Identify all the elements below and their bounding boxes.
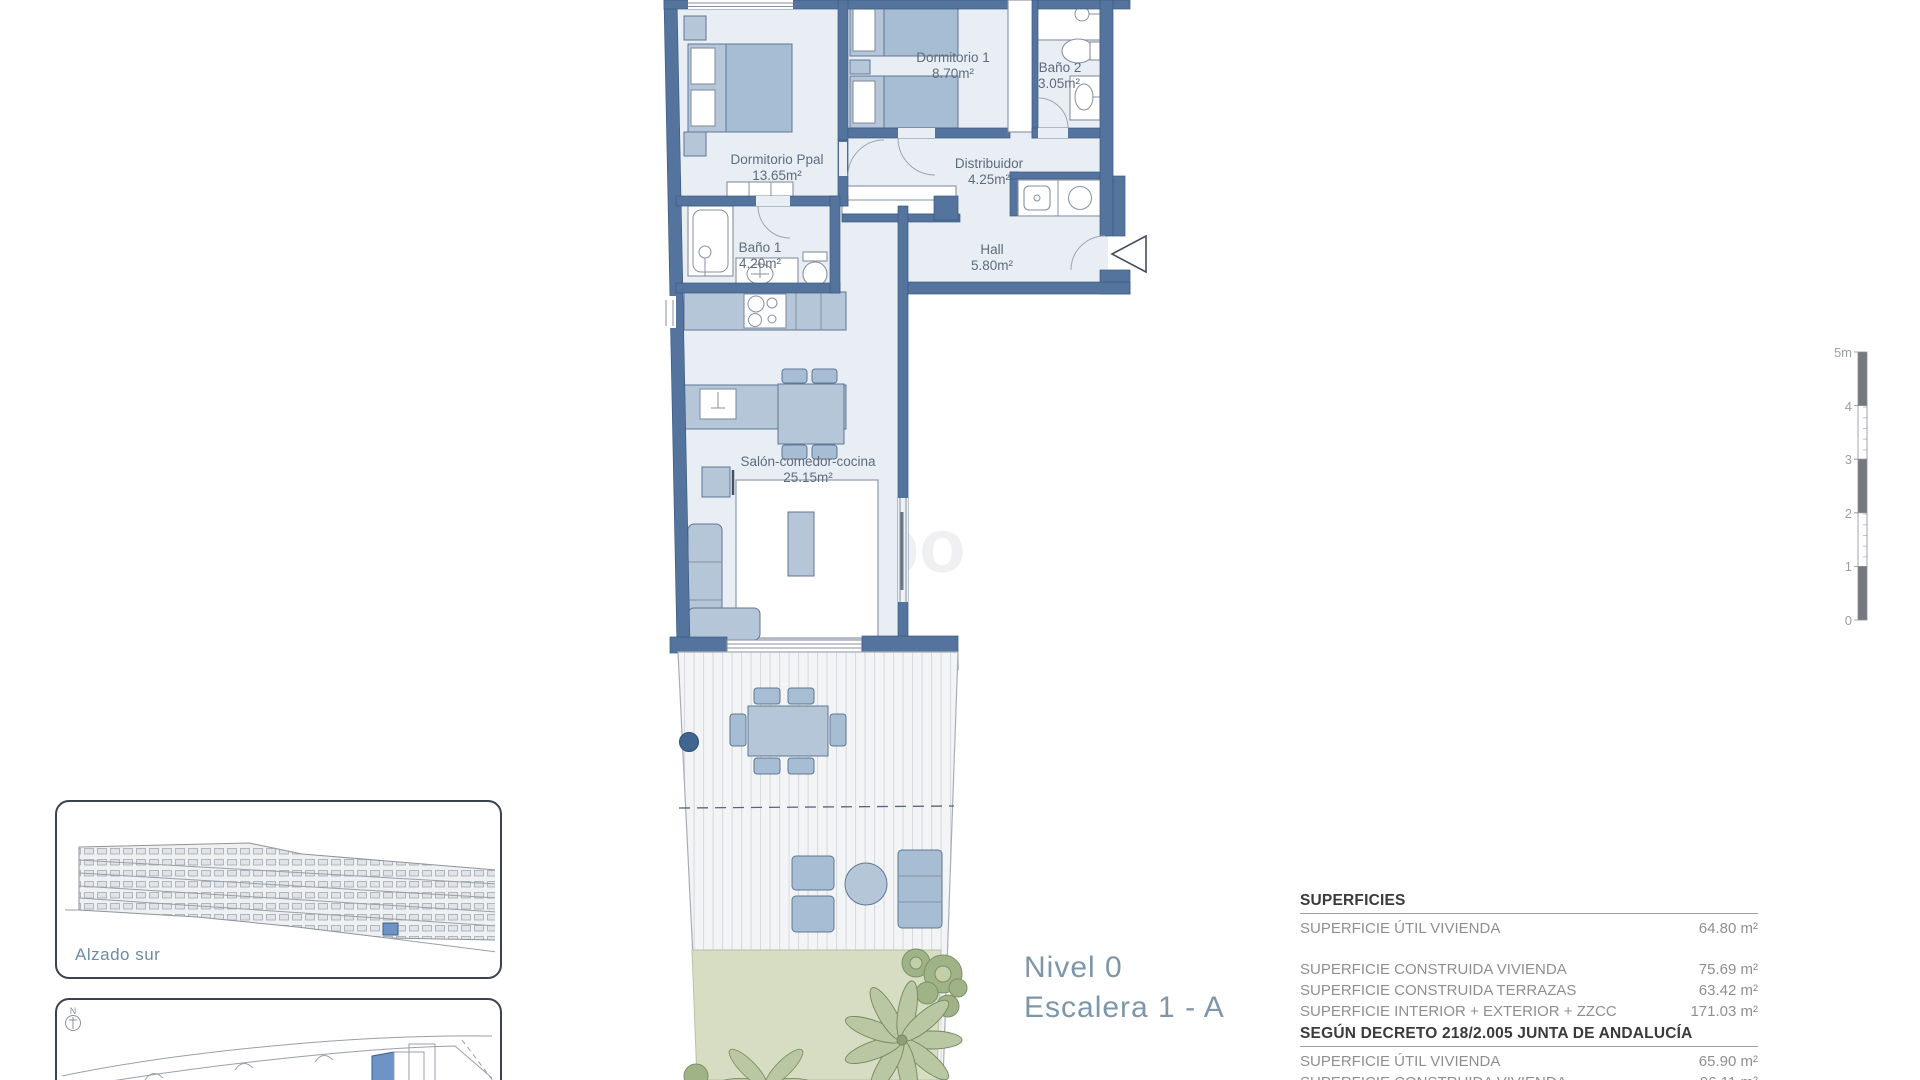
- row-value: 65.90 m²: [1699, 1051, 1758, 1072]
- row-label: SUPERFICIE CONSTRUIDA VIVIENDA: [1300, 959, 1567, 980]
- living-area-furniture: [688, 467, 878, 640]
- room-area: 13.65m²: [752, 168, 802, 183]
- table-row: SUPERFICIE CONSTRUIDA VIVIENDA 75.69 m²: [1300, 959, 1758, 980]
- room-area: 3.05m²: [1038, 76, 1081, 91]
- north-label: N: [70, 1006, 77, 1016]
- table-row: SUPERFICIE CONSTRUIDA VIVIENDA 96.11 m²: [1300, 1072, 1758, 1080]
- divider: [1300, 913, 1758, 914]
- room-label: Baño 1: [739, 240, 782, 255]
- room-area: 8.70m²: [932, 66, 975, 81]
- scale-tick-label: 5m: [1834, 345, 1852, 360]
- scale-tick-label: 0: [1845, 613, 1852, 628]
- room-area: 4.20m²: [739, 256, 782, 271]
- room-label: Dormitorio 1: [916, 50, 990, 65]
- entry-arrow: [1112, 236, 1146, 272]
- site-plan-drawing: N: [57, 1000, 495, 1080]
- scale-bar: 5m 4 3 2 1 0: [1834, 345, 1867, 628]
- level-title: Nivel 0 Escalera 1 - A: [1024, 948, 1225, 1028]
- scale-tick-label: 2: [1845, 506, 1852, 521]
- room-label: Salón-comedor-cocina: [740, 454, 876, 469]
- row-label: SUPERFICIE CONSTRUIDA TERRAZAS: [1300, 980, 1576, 1001]
- table-row: SUPERFICIE CONSTRUIDA TERRAZAS 63.42 m²: [1300, 980, 1758, 1001]
- row-value: 64.80 m²: [1699, 918, 1758, 939]
- elevation-label: Alzado sur: [75, 945, 160, 965]
- spacer: [1300, 939, 1758, 959]
- room-area: 4.25m²: [968, 172, 1011, 187]
- surfaces-title: SUPERFICIES: [1300, 891, 1758, 910]
- room-label: Dormitorio Ppal: [730, 152, 823, 167]
- floorplan-page: Spo: [0, 0, 1920, 1080]
- row-value: 63.42 m²: [1699, 980, 1758, 1001]
- table-row: SUPERFICIE ÚTIL VIVIENDA 65.90 m²: [1300, 1051, 1758, 1072]
- scale-tick-label: 1: [1845, 559, 1852, 574]
- terrace: [678, 652, 967, 1080]
- row-label: SUPERFICIE INTERIOR + EXTERIOR + ZZCC: [1300, 1001, 1617, 1022]
- table-row: SUPERFICIE INTERIOR + EXTERIOR + ZZCC 17…: [1300, 1001, 1758, 1022]
- staircase-name: Escalera 1 - A: [1024, 988, 1225, 1028]
- room-area: 25.15m²: [783, 470, 833, 485]
- divider: [1300, 1046, 1758, 1047]
- room-label: Distribuidor: [955, 156, 1024, 171]
- decree-header: SEGÚN DECRETO 218/2.005 JUNTA DE ANDALUC…: [1300, 1024, 1758, 1043]
- room-label: Hall: [980, 242, 1003, 257]
- unit-highlight: [372, 1052, 394, 1080]
- north-compass-icon: N: [66, 1006, 81, 1031]
- row-value: 75.69 m²: [1699, 959, 1758, 980]
- apartment-plan: [664, 0, 1146, 670]
- room-area: 5.80m²: [971, 258, 1014, 273]
- surfaces-table: SUPERFICIES SUPERFICIE ÚTIL VIVIENDA 64.…: [1300, 891, 1758, 1080]
- row-label: SUPERFICIE CONSTRUIDA VIVIENDA: [1300, 1072, 1567, 1080]
- scale-tick-label: 4: [1845, 399, 1852, 414]
- level-name: Nivel 0: [1024, 948, 1225, 988]
- scale-tick-label: 3: [1845, 452, 1852, 467]
- laundry-closet: [1010, 172, 1104, 216]
- row-label: SUPERFICIE ÚTIL VIVIENDA: [1300, 918, 1500, 939]
- elevation-box: Alzado sur: [55, 800, 502, 979]
- table-row: SUPERFICIE ÚTIL VIVIENDA 64.80 m²: [1300, 918, 1758, 939]
- site-plan-box: N: [55, 998, 502, 1080]
- row-value: 96.11 m²: [1700, 1072, 1758, 1080]
- room-label: Baño 2: [1039, 60, 1082, 75]
- row-value: 171.03 m²: [1690, 1001, 1758, 1022]
- row-label: SUPERFICIE ÚTIL VIVIENDA: [1300, 1051, 1500, 1072]
- unit-highlight: [383, 923, 398, 935]
- terrace-column: [680, 733, 699, 752]
